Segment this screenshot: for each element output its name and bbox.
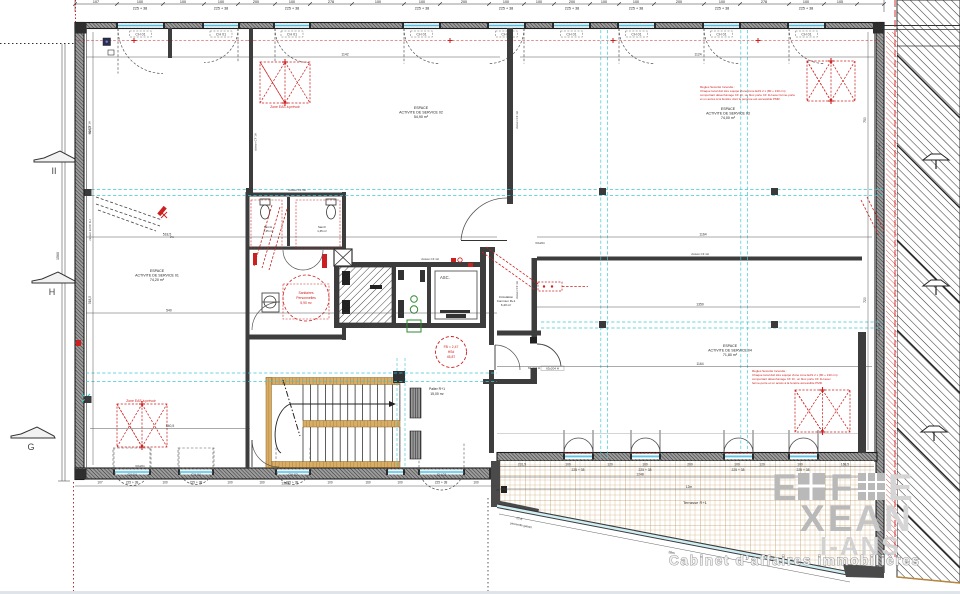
svg-text:200: 200 bbox=[569, 0, 575, 4]
svg-text:mur CF 1H: mur CF 1H bbox=[877, 323, 881, 337]
svg-text:71,80 m²: 71,80 m² bbox=[723, 353, 738, 357]
svg-text:200: 200 bbox=[253, 0, 259, 4]
svg-text:225 + 38: 225 + 38 bbox=[126, 481, 139, 485]
svg-text:107: 107 bbox=[97, 481, 103, 485]
svg-text:CH 02: CH 02 bbox=[288, 473, 298, 477]
svg-text:cloison EI CF 1H: cloison EI CF 1H bbox=[88, 220, 92, 241]
svg-text:225 + 38: 225 + 38 bbox=[133, 7, 147, 11]
svg-text:ferme-porte et un accès à la f: ferme-porte et un accès à la fenêtre acc… bbox=[752, 381, 823, 385]
svg-text:225 + 38: 225 + 38 bbox=[799, 7, 813, 11]
svg-text:160: 160 bbox=[365, 481, 371, 485]
svg-text:II: II bbox=[51, 166, 56, 176]
svg-text:100: 100 bbox=[503, 0, 509, 4]
svg-text:750: 750 bbox=[863, 117, 867, 123]
svg-text:100: 100 bbox=[803, 0, 809, 4]
svg-text:100: 100 bbox=[419, 0, 425, 4]
svg-text:1,45 m²: 1,45 m² bbox=[263, 229, 273, 233]
svg-text:278: 278 bbox=[761, 0, 767, 4]
svg-text:6,40 m²: 6,40 m² bbox=[501, 303, 511, 307]
svg-text:1142: 1142 bbox=[341, 53, 348, 57]
svg-text:160: 160 bbox=[259, 481, 265, 485]
svg-text:CH 01: CH 01 bbox=[416, 33, 426, 37]
svg-text:ESPACE: ESPACE bbox=[150, 269, 165, 273]
svg-text:cloison CF 1H: cloison CF 1H bbox=[515, 281, 519, 299]
svg-text:200: 200 bbox=[687, 463, 693, 467]
svg-text:100: 100 bbox=[218, 0, 224, 4]
svg-text:15,00 m²: 15,00 m² bbox=[430, 392, 444, 396]
svg-text:63x204: 63x204 bbox=[135, 464, 145, 468]
svg-text:CH 01: CH 01 bbox=[631, 33, 641, 37]
svg-text:5,90 m²: 5,90 m² bbox=[300, 301, 312, 305]
svg-text:100: 100 bbox=[137, 0, 143, 4]
svg-text:CH 04: CH 04 bbox=[191, 473, 201, 477]
svg-text:CH 01: CH 01 bbox=[287, 33, 297, 37]
svg-text:Zone EAS à prévoir: Zone EAS à prévoir bbox=[126, 399, 156, 403]
svg-text:105: 105 bbox=[837, 0, 843, 4]
svg-text:CH 01: CH 01 bbox=[566, 33, 576, 37]
svg-text:278: 278 bbox=[328, 0, 334, 4]
svg-text:225 + 38: 225 + 38 bbox=[435, 481, 448, 485]
svg-text:Sanitaires: Sanitaires bbox=[298, 291, 313, 295]
svg-text:cloison CF 1H: cloison CF 1H bbox=[691, 252, 709, 256]
svg-text:225 + 38: 225 + 38 bbox=[499, 7, 513, 11]
svg-text:100: 100 bbox=[797, 463, 803, 467]
svg-text:12m: 12m bbox=[686, 485, 693, 489]
svg-text:540: 540 bbox=[166, 309, 172, 313]
svg-text:100: 100 bbox=[734, 463, 740, 467]
svg-text:225 + 38: 225 + 38 bbox=[639, 468, 652, 472]
svg-text:45,87: 45,87 bbox=[447, 355, 456, 359]
svg-text:1350: 1350 bbox=[696, 303, 704, 307]
svg-text:cloison CF 1H: cloison CF 1H bbox=[254, 133, 258, 151]
svg-text:CH 03: CH 03 bbox=[437, 473, 447, 477]
svg-text:100: 100 bbox=[397, 481, 403, 485]
svg-text:ACTIVITE DE SERVICE 03: ACTIVITE DE SERVICE 03 bbox=[706, 112, 750, 116]
svg-text:1,45 m²: 1,45 m² bbox=[317, 229, 327, 233]
svg-text:200: 200 bbox=[676, 0, 682, 4]
svg-text:100: 100 bbox=[375, 0, 381, 4]
svg-text:100: 100 bbox=[180, 0, 186, 4]
svg-text:168,5: 168,5 bbox=[841, 463, 849, 467]
svg-text:Zone EAS à prévoir: Zone EAS à prévoir bbox=[270, 105, 300, 109]
svg-text:ACTIVITE DE SERVICE 02: ACTIVITE DE SERVICE 02 bbox=[399, 111, 443, 115]
svg-text:120: 120 bbox=[607, 463, 613, 467]
svg-text:100: 100 bbox=[536, 0, 542, 4]
svg-text:54,90 m²: 54,90 m² bbox=[414, 115, 429, 119]
svg-text:225 + 38: 225 + 38 bbox=[572, 468, 585, 472]
svg-text:1164: 1164 bbox=[699, 233, 706, 237]
svg-text:74,00 m²: 74,00 m² bbox=[721, 116, 736, 120]
svg-text:225 + 38: 225 + 38 bbox=[732, 468, 745, 472]
svg-text:107: 107 bbox=[93, 0, 99, 4]
svg-text:63x204 H: 63x204 H bbox=[528, 366, 540, 370]
svg-text:CH 01: CH 01 bbox=[716, 33, 726, 37]
svg-text:cloison CF 1H: cloison CF 1H bbox=[421, 257, 439, 261]
svg-text:26: 26 bbox=[496, 488, 500, 492]
svg-text:100: 100 bbox=[473, 481, 479, 485]
svg-text:540,5: 540,5 bbox=[166, 424, 175, 428]
svg-text:720: 720 bbox=[863, 297, 867, 303]
svg-text:225 + 38: 225 + 38 bbox=[285, 7, 299, 11]
svg-text:Palier R+1: Palier R+1 bbox=[429, 387, 445, 391]
svg-text:cloison CF 1H: cloison CF 1H bbox=[515, 111, 519, 129]
svg-text:CH 01: CH 01 bbox=[216, 33, 226, 37]
svg-text:ESPACE: ESPACE bbox=[723, 344, 738, 348]
svg-text:231,5: 231,5 bbox=[518, 463, 526, 467]
svg-text:ACTIVITE DE SERVICE 01: ACTIVITE DE SERVICE 01 bbox=[135, 274, 179, 278]
svg-text:CH 01: CH 01 bbox=[801, 33, 811, 37]
svg-text:ESPACE: ESPACE bbox=[414, 106, 429, 110]
svg-text:225 + 38: 225 + 38 bbox=[214, 7, 228, 11]
svg-text:74,20 m²: 74,20 m² bbox=[150, 278, 165, 282]
svg-text:120: 120 bbox=[759, 463, 765, 467]
svg-text:225 + 38: 225 + 38 bbox=[415, 7, 429, 11]
svg-text:CH 04: CH 04 bbox=[127, 473, 137, 477]
svg-text:E: E bbox=[772, 467, 796, 508]
svg-text:et un accès à la fenêtre dont: et un accès à la fenêtre dont la poignée… bbox=[700, 97, 781, 101]
svg-text:100: 100 bbox=[719, 0, 725, 4]
svg-text:225 + 38: 225 + 38 bbox=[797, 468, 810, 472]
svg-text:1124: 1124 bbox=[694, 53, 701, 57]
svg-text:100: 100 bbox=[162, 481, 168, 485]
svg-text:100: 100 bbox=[642, 463, 648, 467]
svg-text:100: 100 bbox=[227, 481, 233, 485]
svg-text:100: 100 bbox=[289, 0, 295, 4]
svg-text:225 + 38: 225 + 38 bbox=[629, 7, 643, 11]
svg-text:cloison CF 1H: cloison CF 1H bbox=[288, 188, 306, 192]
svg-text:200: 200 bbox=[461, 0, 467, 4]
svg-text:Cabinet d’affaires immobilière: Cabinet d’affaires immobilières bbox=[669, 553, 919, 568]
svg-text:225 + 38: 225 + 38 bbox=[286, 481, 299, 485]
svg-text:225 + 38: 225 + 38 bbox=[190, 481, 203, 485]
svg-text:1560: 1560 bbox=[56, 252, 60, 260]
svg-text:H: H bbox=[49, 287, 56, 297]
svg-text:CH 01: CH 01 bbox=[135, 33, 145, 37]
svg-text:Terrasse R+1: Terrasse R+1 bbox=[683, 500, 708, 505]
svg-text:518,5: 518,5 bbox=[88, 296, 92, 304]
svg-text:100: 100 bbox=[565, 463, 571, 467]
svg-text:1164: 1164 bbox=[696, 362, 703, 366]
svg-text:63x204: 63x204 bbox=[535, 241, 545, 245]
svg-text:63x204 H: 63x204 H bbox=[546, 367, 559, 371]
svg-text:225 + 38: 225 + 38 bbox=[565, 7, 579, 11]
svg-text:225 + 38: 225 + 38 bbox=[715, 7, 729, 11]
svg-text:100: 100 bbox=[633, 0, 639, 4]
svg-text:1248: 1248 bbox=[636, 473, 644, 477]
svg-text:HSd: HSd bbox=[448, 350, 455, 354]
svg-text:mur CF 1H: mur CF 1H bbox=[88, 121, 92, 135]
svg-text:ASC.: ASC. bbox=[440, 275, 450, 280]
svg-text:G: G bbox=[27, 442, 34, 452]
svg-text:ACTIVITE DE SERVICE 04: ACTIVITE DE SERVICE 04 bbox=[708, 349, 752, 353]
svg-text:100: 100 bbox=[601, 0, 607, 4]
svg-text:FB = 2,47: FB = 2,47 bbox=[444, 345, 459, 349]
svg-text:ESPACE: ESPACE bbox=[721, 107, 736, 111]
svg-text:Personnelles: Personnelles bbox=[296, 296, 316, 300]
svg-text:100: 100 bbox=[327, 481, 333, 485]
svg-text:mur CF 1H: mur CF 1H bbox=[877, 143, 881, 157]
